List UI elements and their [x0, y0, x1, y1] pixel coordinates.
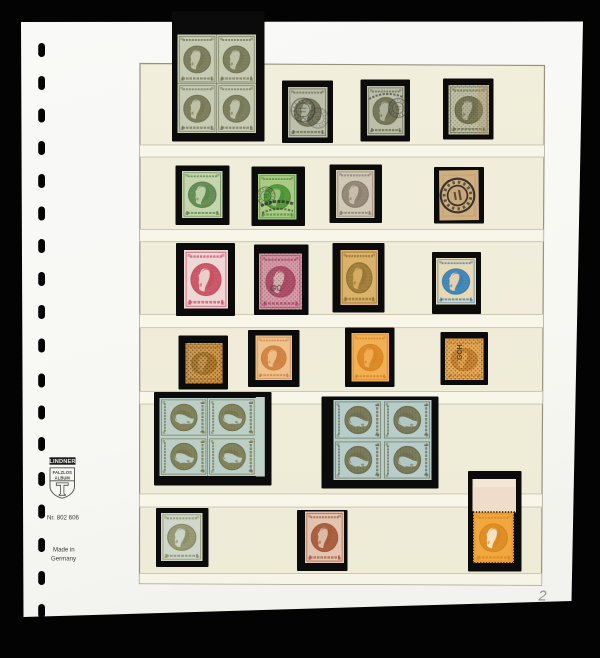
svg-text:2: 2 — [538, 589, 547, 605]
svg-text:LINDNER: LINDNER — [49, 459, 75, 465]
svg-text:Nr. 802 606: Nr. 802 606 — [47, 515, 80, 522]
svg-text:Made in: Made in — [53, 547, 75, 554]
svg-text:GC: GC — [270, 284, 282, 293]
svg-text:Germany: Germany — [51, 556, 77, 563]
svg-text:ALBUM: ALBUM — [55, 475, 71, 480]
svg-text:GCH: GCH — [457, 344, 464, 360]
